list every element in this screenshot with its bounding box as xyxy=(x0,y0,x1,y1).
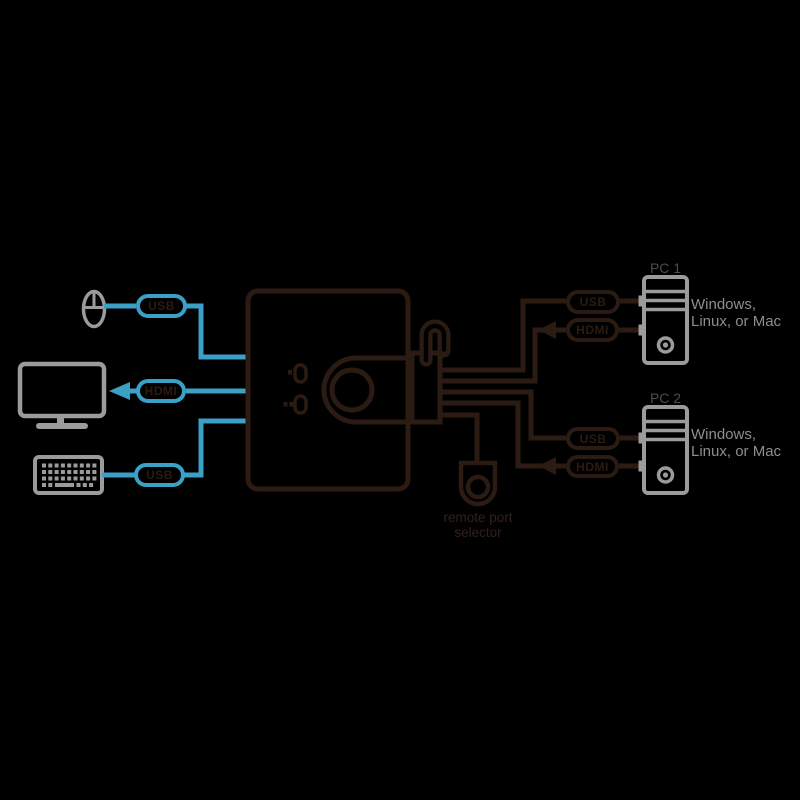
keyboard-usb-label: USB xyxy=(146,468,173,482)
pc2-hdmi-pill: HDMI xyxy=(566,455,619,478)
mouse-usb-pill: USB xyxy=(136,294,187,318)
pc2-os-line1: Windows, xyxy=(691,426,781,443)
remote-port-selector-label: remote port selector xyxy=(418,510,538,540)
pc1-usb-label: USB xyxy=(580,295,607,309)
monitor-icon xyxy=(20,364,104,429)
pc2-tower-icon xyxy=(639,407,688,493)
remote-port-selector-icon xyxy=(461,463,495,504)
keyboard-usb-cable-to-switch xyxy=(184,421,248,475)
cable-knob xyxy=(332,370,372,410)
keyboard-usb-pill: USB xyxy=(134,463,185,487)
pc1-hdmi-cable xyxy=(440,330,566,381)
mouse-icon xyxy=(84,292,105,327)
remote-selector-cable xyxy=(440,415,477,462)
kvm-switch-diagram: USB HDMI USB USB HDMI USB HDMI PC 1 Wind… xyxy=(0,0,800,800)
remote-selector-line2: selector xyxy=(418,525,538,540)
pc2-usb-label: USB xyxy=(580,432,607,446)
pc1-hdmi-label: HDMI xyxy=(576,323,609,337)
mouse-usb-cable-to-switch xyxy=(186,306,248,357)
pc2-hdmi-arrow-icon xyxy=(538,457,556,475)
pc1-os-line1: Windows, xyxy=(691,296,781,313)
pc1-hdmi-arrow-icon xyxy=(538,321,556,339)
port-led-1 xyxy=(288,365,306,382)
cable-bundle xyxy=(324,358,414,422)
keyboard-keys xyxy=(42,464,96,488)
mouse-usb-label: USB xyxy=(148,299,175,313)
pc1-usb-cable xyxy=(440,301,566,370)
pc1-name: PC 1 xyxy=(640,260,691,276)
pc2-usb-pill: USB xyxy=(566,427,620,450)
pc1-os-text: Windows, Linux, or Mac xyxy=(691,296,781,330)
remote-selector-line1: remote port xyxy=(418,510,538,525)
pc2-os-line2: Linux, or Mac xyxy=(691,443,781,460)
pc1-os-line2: Linux, or Mac xyxy=(691,313,781,330)
pc1-tower-icon xyxy=(639,277,688,363)
pc1-hdmi-pill: HDMI xyxy=(566,318,619,342)
pc2-hdmi-cable xyxy=(440,403,566,466)
kvm-switch-body xyxy=(248,291,408,489)
monitor-hdmi-label: HDMI xyxy=(145,384,178,398)
pc2-name: PC 2 xyxy=(640,390,691,406)
keyboard-icon xyxy=(35,457,102,493)
monitor-arrow-icon xyxy=(109,382,130,400)
pc2-hdmi-label: HDMI xyxy=(576,460,609,474)
pc1-usb-pill: USB xyxy=(566,290,620,314)
monitor-hdmi-pill: HDMI xyxy=(136,379,186,403)
pc2-os-text: Windows, Linux, or Mac xyxy=(691,426,781,460)
port-led-2 xyxy=(284,396,307,413)
